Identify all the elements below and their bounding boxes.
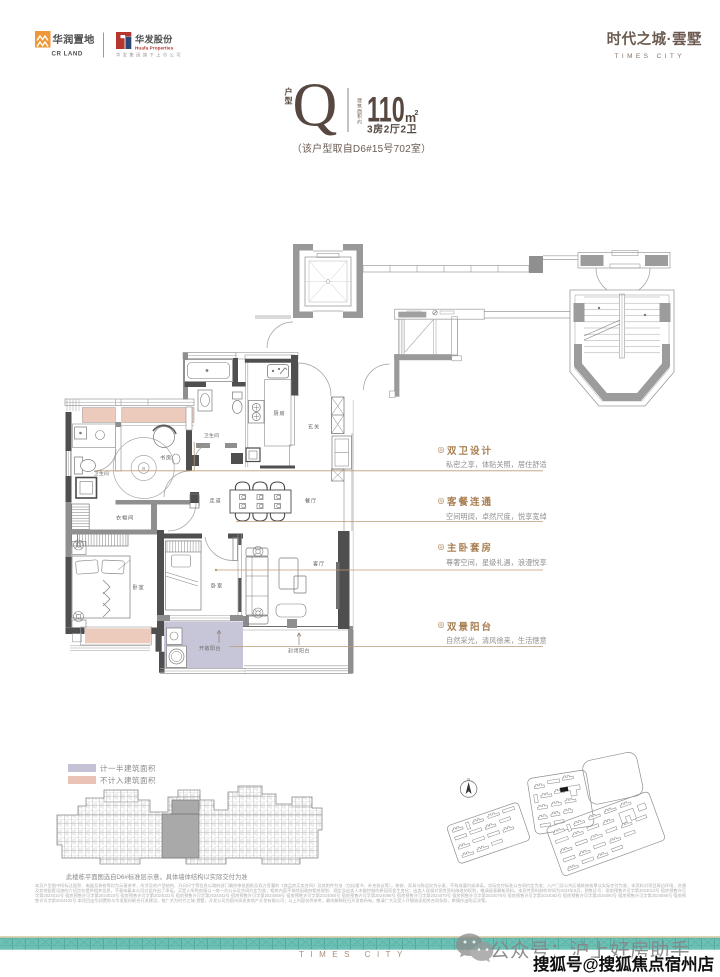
svg-text:开敞阳台: 开敞阳台 bbox=[199, 645, 221, 652]
svg-text:筑: 筑 bbox=[357, 102, 362, 109]
svg-text:2: 2 bbox=[415, 110, 419, 117]
svg-text:面: 面 bbox=[357, 109, 362, 115]
svg-text:（该户型取自D6#15号702室）: （该户型取自D6#15号702室） bbox=[292, 142, 432, 155]
svg-text:封闭阳台: 封闭阳台 bbox=[288, 648, 310, 655]
svg-text:餐厅: 餐厅 bbox=[305, 497, 317, 505]
svg-text:户: 户 bbox=[285, 87, 293, 97]
svg-text:卧室: 卧室 bbox=[211, 582, 223, 590]
svg-text:书房: 书房 bbox=[160, 454, 172, 462]
svg-text:走道: 走道 bbox=[210, 497, 222, 505]
svg-text:建: 建 bbox=[357, 97, 362, 104]
svg-text:玄关: 玄关 bbox=[308, 423, 320, 431]
svg-text:卫生间: 卫生间 bbox=[204, 432, 219, 439]
svg-text:约: 约 bbox=[357, 119, 362, 126]
svg-text:卧室: 卧室 bbox=[133, 583, 145, 591]
svg-text:3房2厅2卫: 3房2厅2卫 bbox=[367, 123, 417, 136]
svg-text:B: B bbox=[142, 466, 145, 471]
svg-text:积: 积 bbox=[357, 113, 362, 120]
svg-text:衣帽间: 衣帽间 bbox=[116, 514, 134, 522]
svg-text:型: 型 bbox=[285, 96, 293, 106]
svg-text:客厅: 客厅 bbox=[313, 560, 325, 568]
svg-text:Q: Q bbox=[293, 72, 338, 140]
svg-text:厨房: 厨房 bbox=[274, 409, 286, 417]
